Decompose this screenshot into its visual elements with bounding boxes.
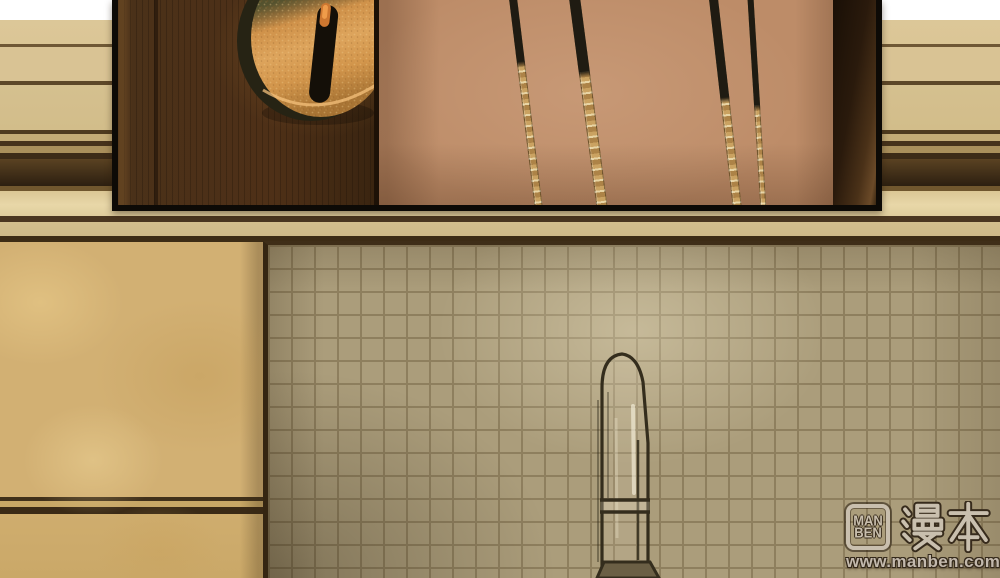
comic-panel xyxy=(112,0,882,211)
door-seam xyxy=(154,0,158,205)
manben-box-logo: MAN BEN xyxy=(846,504,890,550)
glyph-man-sun xyxy=(917,506,937,516)
logo-url: www.manben.com xyxy=(846,552,998,572)
glass-vessel xyxy=(592,348,664,578)
vessel-highlight xyxy=(633,406,634,493)
vessel-highlight-soft xyxy=(616,418,617,538)
glyph-man-net xyxy=(914,521,941,529)
watermark-logo: MAN BEN xyxy=(846,504,998,576)
logo-row: MAN BEN xyxy=(846,504,998,550)
door-frame-right xyxy=(833,0,876,205)
panel-wall xyxy=(379,0,835,205)
vessel-base xyxy=(597,562,659,578)
marble-wall xyxy=(0,242,266,578)
manben-cjk-logo xyxy=(897,501,993,553)
comic-page: MAN BEN xyxy=(0,0,1000,578)
logo-box-text-bottom: BEN xyxy=(854,526,881,540)
